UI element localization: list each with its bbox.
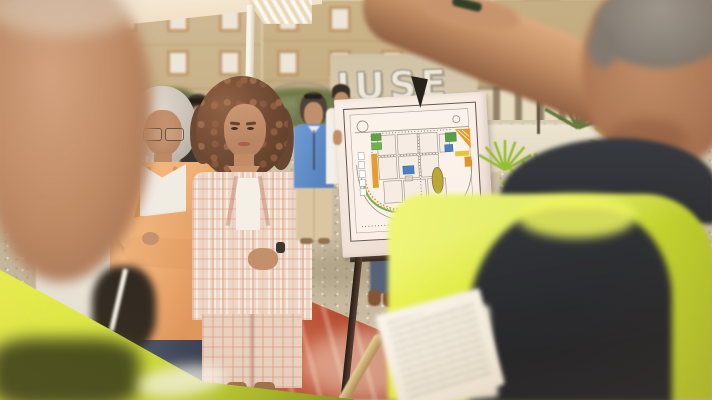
- paper-text-lines: [387, 300, 493, 400]
- inner-white-shirt: [236, 178, 260, 230]
- beige-trousers: [296, 188, 332, 240]
- clasped-hands: [248, 248, 278, 270]
- vest-shaded-corner: [0, 338, 140, 400]
- blue-woman-sunglasses: [304, 94, 322, 99]
- photo-scene: JUSE EMRN: [0, 0, 712, 400]
- curly-woman-face: [224, 104, 266, 158]
- eye-left: [231, 127, 238, 130]
- blue-woman-lanyard: [313, 130, 315, 170]
- board-holder-boot-left: [368, 290, 381, 306]
- eyeglasses-lens-right: [165, 128, 184, 141]
- worker-hair-curl: [588, 28, 618, 68]
- wristwatch: [276, 242, 285, 253]
- lips: [238, 142, 250, 146]
- grey-woman-hand: [142, 232, 159, 245]
- board-holder-hand: [333, 130, 342, 145]
- sandal-left: [300, 238, 313, 244]
- eye-right: [247, 127, 254, 130]
- sandal-right: [318, 238, 330, 244]
- vest-shoulder-highlight: [518, 196, 636, 238]
